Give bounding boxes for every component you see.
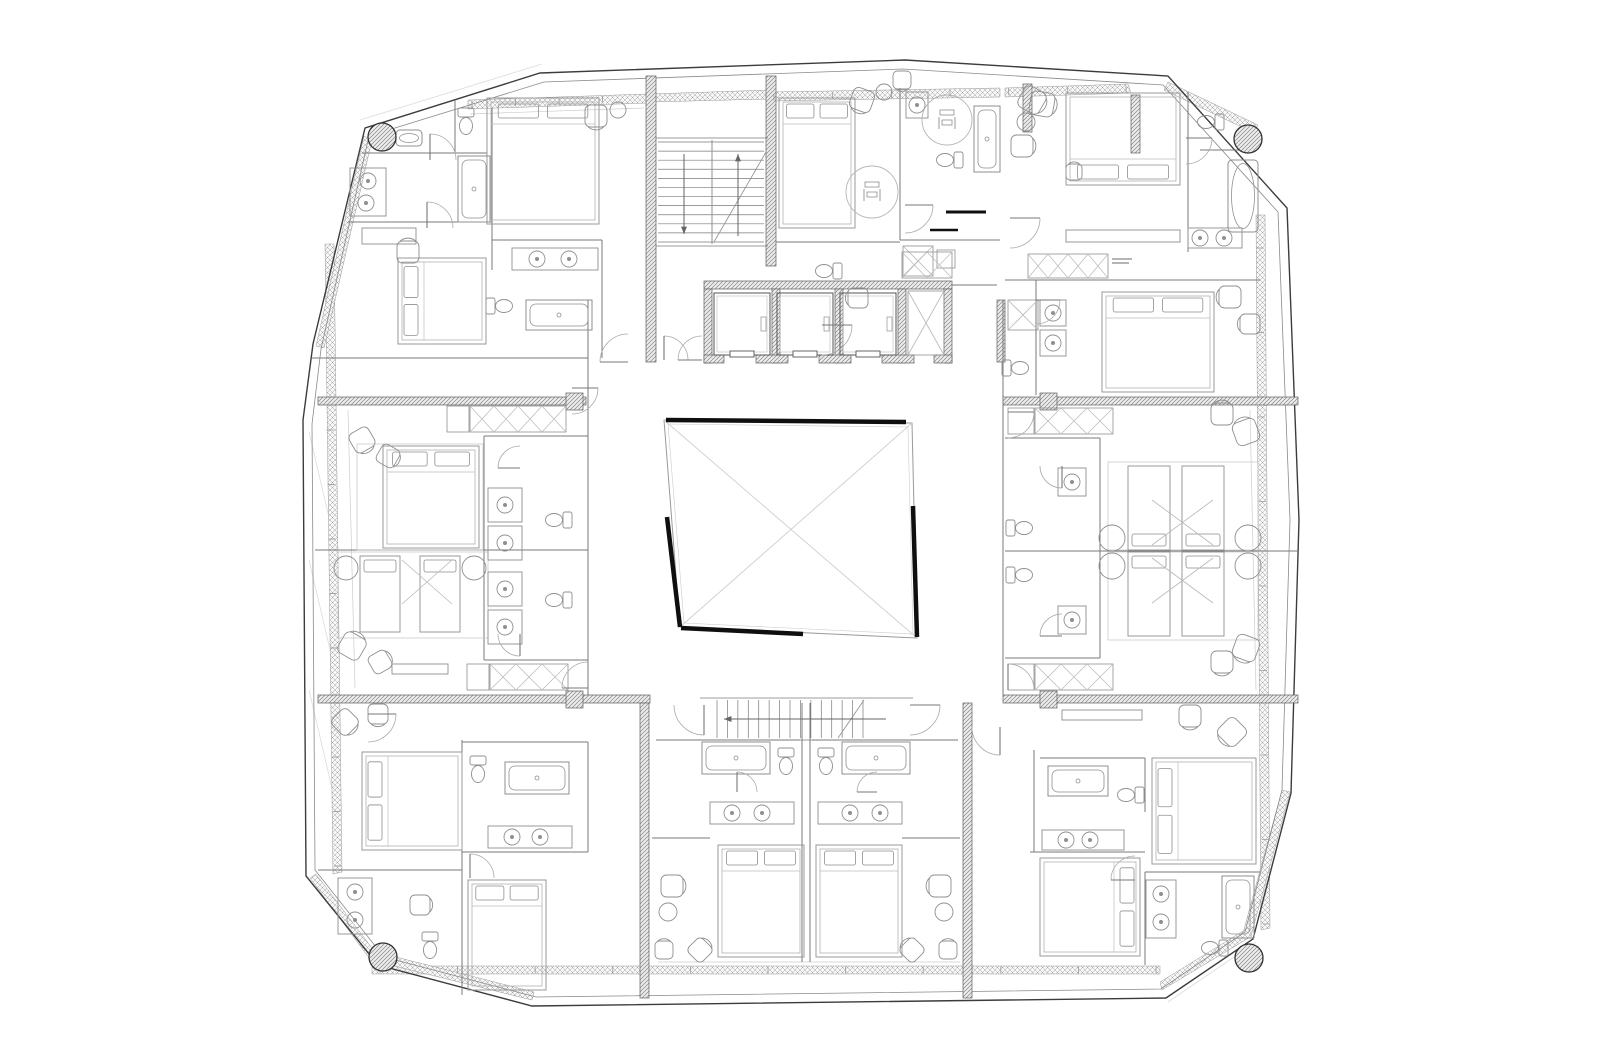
demising-wall (318, 397, 586, 405)
corner-column (1235, 944, 1263, 972)
bed-queen (718, 845, 804, 957)
bed-twin (1128, 466, 1170, 550)
bed-twin (420, 556, 460, 632)
bed-twin (1182, 552, 1224, 636)
stair-double-door (678, 336, 702, 360)
closet (490, 664, 568, 690)
vanity-double (1042, 830, 1124, 850)
atrium-edge-solid (666, 420, 906, 422)
armchair (1213, 715, 1249, 751)
toilet (546, 592, 573, 608)
luggage-bench (447, 406, 469, 432)
toilet (816, 263, 843, 279)
bed-platform (357, 444, 483, 550)
partition-wall (1023, 84, 1032, 132)
demising-wall (963, 703, 972, 998)
wheelchair-turning-circle (922, 95, 972, 145)
vanity (1040, 300, 1066, 326)
parapet-line (360, 64, 542, 120)
armchair (845, 288, 868, 308)
armchair (1179, 705, 1201, 730)
room-door (368, 714, 396, 742)
room-door (1010, 218, 1040, 248)
room-door (1008, 664, 1034, 690)
side-table (610, 102, 626, 118)
bed-king (487, 98, 599, 224)
bathtub (974, 106, 1000, 172)
partition-wall (1131, 95, 1140, 153)
elevator-wall (934, 355, 952, 363)
desk (362, 228, 416, 244)
elevator-wall (756, 355, 788, 363)
bath-door (498, 446, 520, 468)
atrium-edge-solid (667, 517, 680, 627)
toilet (1006, 567, 1033, 583)
exterior-wall-band (372, 966, 1160, 974)
wheelchair-turning-circle (846, 166, 898, 218)
atrium-diagonal (680, 423, 912, 627)
elevator-wall (819, 355, 851, 363)
stair-break (714, 152, 766, 242)
vanity-double (818, 802, 902, 824)
room-door (600, 334, 628, 362)
exterior-wall-band (378, 954, 534, 1000)
luggage-bench (467, 664, 489, 690)
bathtub (526, 300, 592, 330)
armchair (366, 647, 396, 676)
closet (1028, 254, 1108, 278)
basin (396, 130, 422, 146)
bath-door (470, 854, 494, 878)
side-table (1099, 553, 1125, 579)
bed-queen (1040, 858, 1140, 956)
bath-door (1040, 614, 1062, 636)
shower (1008, 300, 1038, 330)
bathtub (505, 762, 569, 794)
toilet (458, 108, 474, 135)
bath-door (857, 772, 877, 792)
room-door (910, 705, 940, 735)
side-table (935, 903, 953, 921)
exterior-wall-band (325, 244, 342, 874)
building-outline (303, 60, 1299, 1006)
bed-queen (362, 752, 462, 850)
bed-platform (1108, 552, 1258, 640)
vanity-double (710, 802, 794, 824)
service-shaft (908, 291, 944, 355)
partition-wall (997, 300, 1005, 362)
demising-wall-block (1040, 691, 1057, 708)
armchair (1211, 651, 1233, 676)
desk (1062, 710, 1142, 720)
elevator-wall (944, 289, 952, 363)
atrium-edge-solid (681, 628, 803, 634)
demising-wall-block (566, 393, 583, 410)
demising-wall-block (1040, 393, 1057, 410)
vanity-double (1146, 880, 1176, 938)
exterior-wall-band (772, 88, 1000, 101)
armchair (1011, 135, 1036, 157)
window-sill (348, 410, 355, 688)
bed-king (1066, 93, 1180, 185)
demising-wall (318, 695, 650, 703)
bath-door (1040, 466, 1062, 488)
dresser (1066, 230, 1180, 242)
bathtub (842, 742, 910, 774)
stair-double-door (664, 336, 688, 360)
demising-wall-block (566, 691, 583, 708)
atrium-diagonal (664, 420, 917, 638)
armchair (347, 425, 378, 458)
toilet (546, 512, 573, 528)
floor-plan-root (303, 60, 1299, 1006)
armchair (374, 442, 404, 471)
desk (392, 664, 448, 674)
building-outline-inner (312, 69, 1290, 997)
vanity (1058, 606, 1086, 634)
toilet (1002, 360, 1029, 376)
vanity (488, 610, 522, 644)
elevator-wall (882, 355, 914, 363)
toilet (778, 748, 794, 775)
exterior-wall-band (650, 90, 770, 102)
bed-king (1102, 292, 1214, 392)
elevator-wall (704, 355, 724, 363)
elevator-car (714, 293, 770, 357)
side-table (1235, 525, 1261, 551)
bed-king (1152, 758, 1256, 864)
bath-door (737, 772, 757, 792)
vanity (488, 526, 522, 560)
armchair (1230, 633, 1262, 667)
armchair (939, 939, 957, 959)
corner-column (1234, 125, 1262, 153)
vanity-double (488, 826, 572, 848)
bath-door (498, 634, 520, 656)
closet (1035, 664, 1113, 690)
micro-annotation (1112, 258, 1132, 264)
window-sill (470, 108, 644, 114)
toilet (1006, 520, 1033, 536)
bath-door (430, 134, 456, 160)
armchair (368, 704, 388, 727)
side-table (1235, 553, 1261, 579)
armchair (893, 71, 911, 91)
armchair (1230, 414, 1262, 448)
bath-door (427, 202, 453, 228)
room-door (972, 727, 1000, 755)
demising-wall (640, 703, 649, 998)
toilet (486, 298, 513, 314)
closet (1035, 408, 1113, 434)
toilet (1118, 787, 1145, 803)
vanity (1040, 330, 1066, 356)
side-table (462, 556, 486, 580)
toilet (470, 756, 486, 783)
bathtub (458, 156, 490, 222)
elevator-wall (898, 289, 906, 363)
floor-plan-page (0, 0, 1600, 1060)
stair-shaft-wall (766, 76, 776, 266)
stool (1066, 162, 1082, 180)
bath-door (1186, 138, 1212, 164)
vanity-double (512, 248, 598, 270)
armchair (655, 939, 673, 959)
stair-upper (658, 142, 764, 242)
bath-door (905, 205, 933, 233)
room-door (674, 705, 704, 735)
vanity (488, 572, 522, 606)
elevator-wall (704, 289, 712, 363)
bathtub (702, 742, 770, 774)
armchair (585, 105, 607, 130)
toilet (422, 932, 438, 959)
armchair (926, 875, 951, 897)
bed-queen (383, 446, 479, 548)
side-table (1099, 525, 1125, 551)
bed-queen (779, 98, 855, 228)
armchair (686, 934, 716, 964)
armchair (661, 875, 686, 897)
armchair (1216, 286, 1241, 308)
closet (902, 252, 952, 278)
bed-queen (398, 258, 486, 344)
bathtub (1048, 766, 1108, 796)
elevator-wall (772, 289, 780, 363)
closet (470, 406, 566, 432)
corner-column (369, 943, 397, 971)
atrium-edge-solid (913, 506, 917, 637)
toilet (937, 152, 964, 168)
elevator-wall (704, 281, 952, 289)
vanity (488, 488, 522, 522)
stair-down-arrow (681, 154, 687, 234)
toilet (818, 748, 834, 775)
floor-plan-canvas (0, 0, 1600, 1060)
armchair (896, 934, 926, 964)
stair-shaft-wall (646, 76, 656, 362)
bed-queen (816, 845, 902, 957)
bed-twin (360, 556, 400, 632)
luggage-bench (1008, 664, 1034, 690)
side-table (659, 903, 677, 921)
exterior-wall-band (468, 94, 648, 109)
corner-column (368, 123, 396, 151)
armchair (410, 895, 433, 915)
vanity-double (1188, 228, 1242, 248)
